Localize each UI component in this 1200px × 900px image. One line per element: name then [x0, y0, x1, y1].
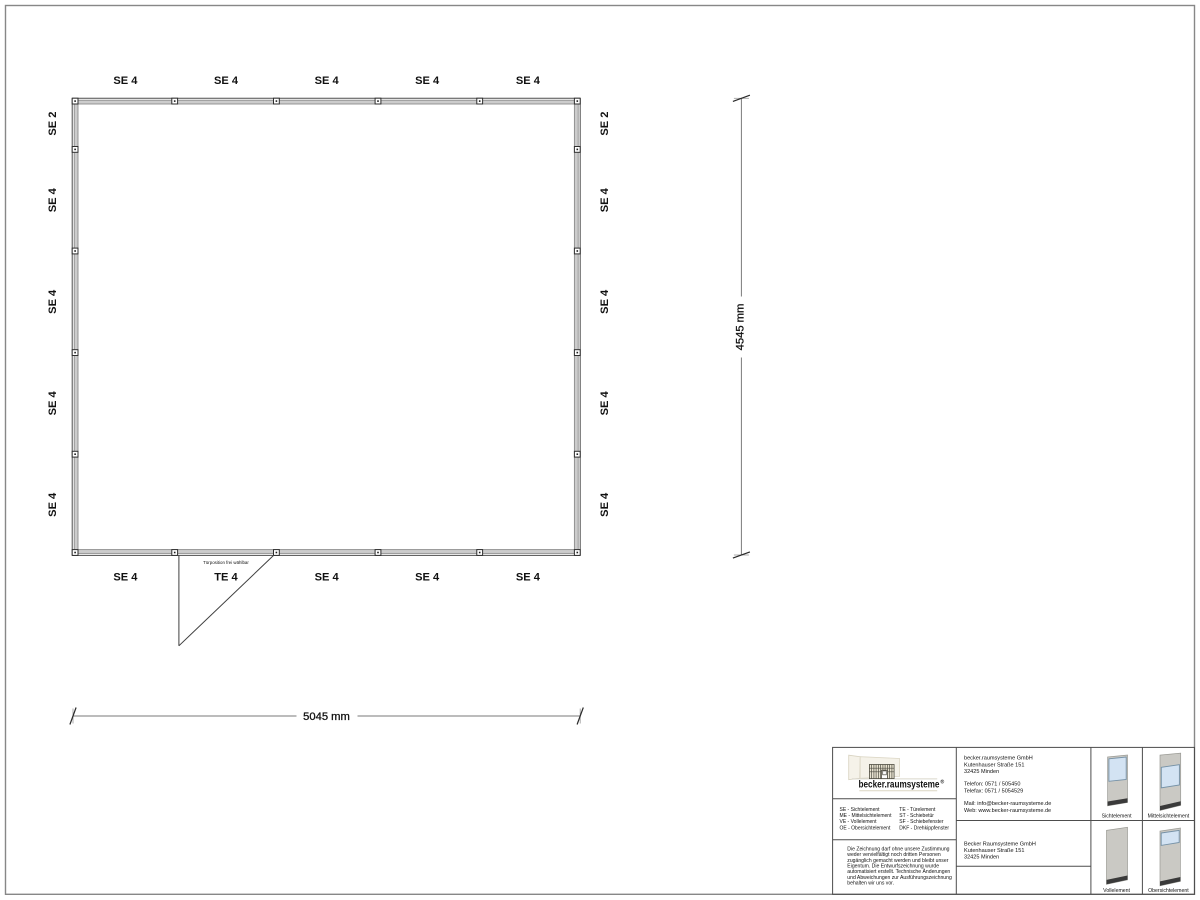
svg-text:Sichtelement: Sichtelement: [1102, 814, 1133, 820]
svg-text:SE 2: SE 2: [47, 112, 59, 136]
svg-text:OE - Obersichtelement: OE - Obersichtelement: [840, 826, 891, 832]
svg-text:Mail: info@becker-raumsysteme.: Mail: info@becker-raumsysteme.de: [964, 801, 1051, 807]
svg-text:ST - Schiebetür: ST - Schiebetür: [899, 813, 934, 819]
svg-text:TE 4: TE 4: [214, 572, 238, 584]
svg-text:4545 mm: 4545 mm: [735, 304, 747, 351]
svg-text:SE 2: SE 2: [599, 112, 611, 136]
svg-text:SE 4: SE 4: [214, 75, 239, 87]
svg-text:VE - Vollelement: VE - Vollelement: [840, 819, 878, 825]
svg-text:5045 mm: 5045 mm: [303, 711, 350, 723]
svg-text:SE 4: SE 4: [599, 492, 611, 517]
svg-text:behalten wir uns vor.: behalten wir uns vor.: [847, 880, 894, 886]
svg-text:DKF - Drehkippfenster: DKF - Drehkippfenster: [899, 826, 949, 832]
svg-text:SE 4: SE 4: [415, 572, 440, 584]
svg-text:SE 4: SE 4: [599, 187, 611, 212]
svg-text:SE 4: SE 4: [599, 289, 611, 314]
svg-text:32425 Minden: 32425 Minden: [964, 854, 999, 860]
svg-text:Becker Raumsysteme GmbH: Becker Raumsysteme GmbH: [964, 842, 1036, 848]
svg-text:SE 4: SE 4: [516, 572, 541, 584]
svg-text:Telefax: 0571 / 5054529: Telefax: 0571 / 5054529: [964, 788, 1023, 794]
svg-text:SE 4: SE 4: [415, 75, 440, 87]
svg-text:Kutenhauser Straße 151: Kutenhauser Straße 151: [964, 762, 1024, 768]
svg-text:ME - Mittelsichtelement: ME - Mittelsichtelement: [840, 813, 893, 819]
svg-text:Kutenhauser Straße 151: Kutenhauser Straße 151: [964, 848, 1024, 854]
svg-text:SE 4: SE 4: [47, 187, 59, 212]
svg-text:SF - Schiebefenster: SF - Schiebefenster: [899, 819, 944, 825]
svg-text:32425 Minden: 32425 Minden: [964, 769, 999, 775]
svg-text:SE 4: SE 4: [315, 75, 340, 87]
svg-text:®: ®: [941, 778, 945, 785]
svg-text:Vollelement: Vollelement: [1103, 888, 1130, 894]
svg-text:Web: www.becker-raumsysteme.de: Web: www.becker-raumsysteme.de: [964, 808, 1051, 814]
svg-text:SE 4: SE 4: [47, 391, 59, 416]
svg-text:SE 4: SE 4: [113, 572, 138, 584]
svg-text:Türposition frei wählbar: Türposition frei wählbar: [203, 560, 249, 565]
svg-text:SE 4: SE 4: [113, 75, 138, 87]
svg-text:SE 4: SE 4: [47, 289, 59, 314]
svg-text:Mittelsichtelement: Mittelsichtelement: [1148, 814, 1190, 820]
svg-text:SE 4: SE 4: [315, 572, 340, 584]
svg-text:Telefon: 0571 / 505450: Telefon: 0571 / 505450: [964, 782, 1020, 788]
svg-text:Obersichtelement: Obersichtelement: [1148, 888, 1189, 894]
svg-text:SE 4: SE 4: [47, 492, 59, 517]
svg-text:SE 4: SE 4: [516, 75, 541, 87]
svg-text:becker.raumsysteme: becker.raumsysteme: [859, 780, 941, 791]
svg-text:SE 4: SE 4: [599, 391, 611, 416]
svg-text:becker.raumsysteme GmbH: becker.raumsysteme GmbH: [964, 756, 1033, 762]
